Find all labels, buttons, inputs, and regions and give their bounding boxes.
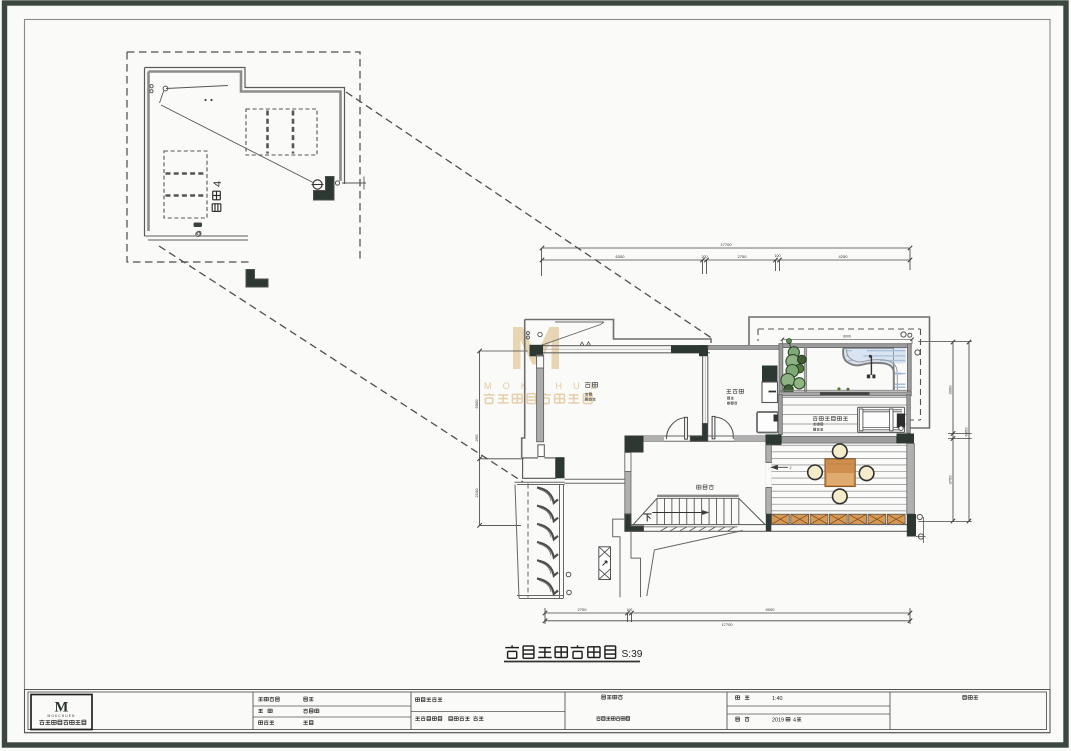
svg-text:6000: 6000 (843, 335, 851, 339)
svg-text:2019: 2019 (772, 718, 784, 724)
svg-text:6850: 6850 (964, 427, 969, 437)
svg-text:5000: 5000 (474, 399, 479, 409)
svg-text:MOKCHUEN: MOKCHUEN (47, 714, 75, 718)
svg-text:4: 4 (212, 181, 224, 187)
svg-text:4: 4 (793, 718, 796, 724)
svg-text:S:39: S:39 (622, 649, 643, 660)
svg-text:17700: 17700 (721, 622, 733, 627)
svg-text:2100: 2100 (474, 488, 479, 498)
svg-text:4250: 4250 (839, 254, 849, 259)
svg-text:3750: 3750 (948, 475, 953, 485)
svg-text:1:40: 1:40 (772, 696, 783, 702)
svg-text:9000: 9000 (766, 607, 776, 612)
svg-text:100: 100 (775, 254, 781, 258)
svg-text:6300: 6300 (616, 254, 626, 259)
svg-text:1950: 1950 (475, 434, 479, 442)
svg-text:200: 200 (702, 255, 708, 259)
svg-text:2: 2 (790, 466, 792, 470)
svg-text:3000: 3000 (948, 385, 953, 395)
svg-text:2700: 2700 (578, 607, 588, 612)
svg-text:17700: 17700 (720, 242, 732, 247)
svg-text:2750: 2750 (738, 254, 748, 259)
svg-text:100: 100 (627, 608, 633, 612)
